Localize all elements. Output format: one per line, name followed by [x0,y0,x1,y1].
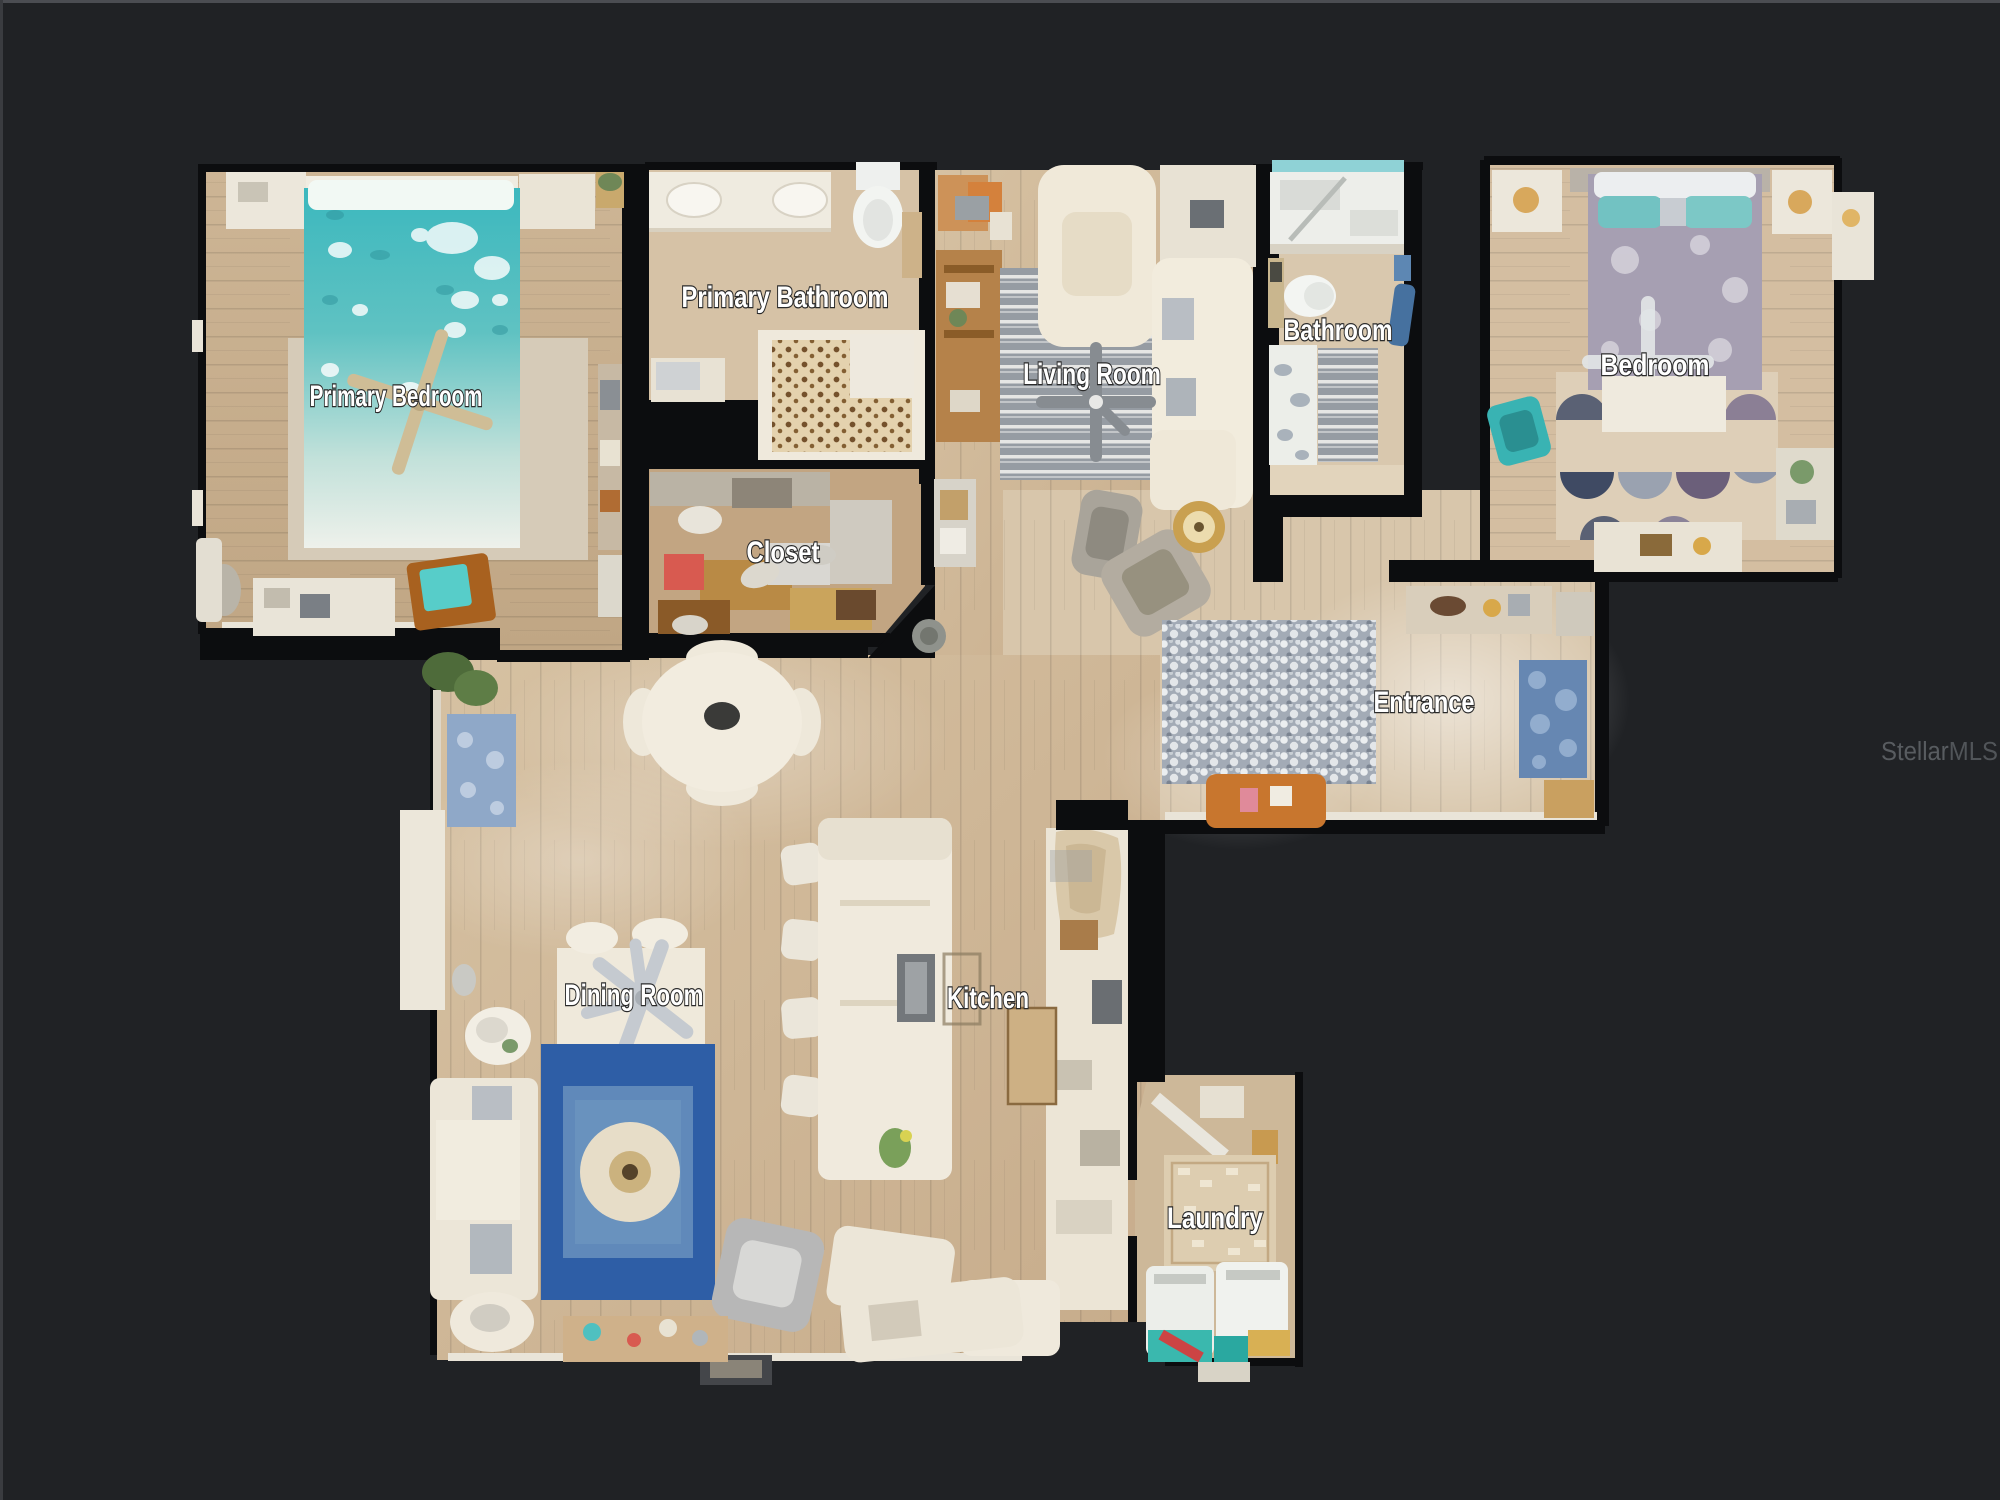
svg-text:Primary Bathroom: Primary Bathroom [682,280,889,313]
svg-text:Closet: Closet [747,534,820,568]
svg-text:Kitchen: Kitchen [947,981,1029,1015]
svg-text:Living Room: Living Room [1023,357,1161,391]
svg-text:Primary Bedroom: Primary Bedroom [310,380,483,413]
svg-text:Entrance: Entrance [1373,685,1474,718]
svg-text:Bathroom: Bathroom [1284,313,1393,347]
svg-text:Dining Room: Dining Room [565,978,704,1012]
svg-text:StellarMLS: StellarMLS [1881,737,1998,766]
svg-text:Laundry: Laundry [1167,1201,1264,1235]
svg-text:Bedroom: Bedroom [1601,348,1710,382]
